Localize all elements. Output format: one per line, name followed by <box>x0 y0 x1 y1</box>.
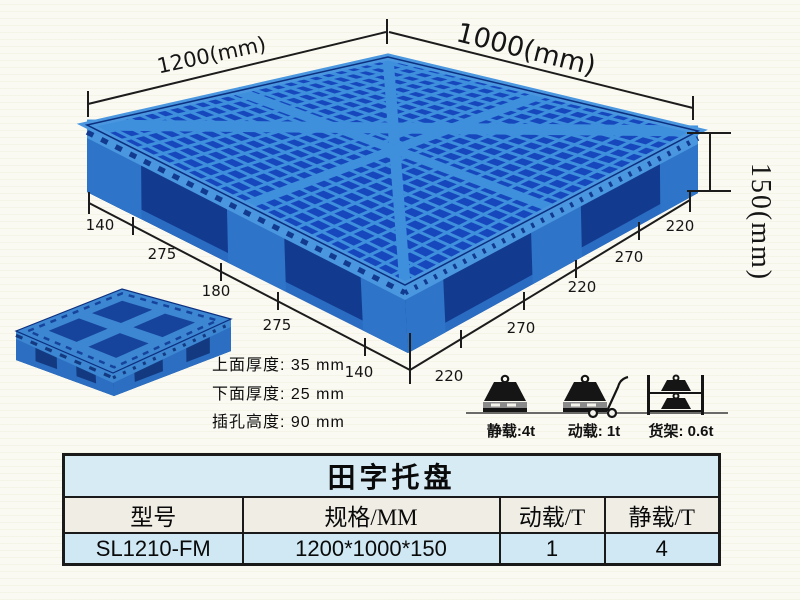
col-dynamic-load: 动载/T <box>500 497 605 533</box>
table-title: 田字托盘 <box>64 455 720 498</box>
right-seg-5: 220 <box>666 217 695 235</box>
left-seg-2: 275 <box>148 245 177 263</box>
right-seg-2: 270 <box>507 319 536 337</box>
product-spec-image: 1200(mm) 1000(mm) 150(mm) 140 275 180 27… <box>0 0 800 600</box>
table-title-row: 田字托盘 <box>64 455 720 498</box>
top-thickness-note: 上面厚度: 35 mm <box>212 352 345 381</box>
spec-table: 田字托盘 型号 规格/MM 动载/T 静载/T SL1210-FM 1200*1… <box>62 453 721 566</box>
cell-static-load: 4 <box>605 533 720 565</box>
rack-load-shelf-icon <box>647 375 704 415</box>
col-model: 型号 <box>64 497 243 533</box>
fork-hole-height-note: 插孔高度: 90 mm <box>212 409 345 438</box>
rack-load-label: 货架: 0.6t <box>648 422 713 440</box>
col-spec: 规格/MM <box>243 497 500 533</box>
thickness-notes: 上面厚度: 35 mm 下面厚度: 25 mm 插孔高度: 90 mm <box>212 352 345 438</box>
table-header-row: 型号 规格/MM 动载/T 静载/T <box>64 497 720 533</box>
static-load-label: 静载:4t <box>487 422 535 440</box>
left-seg-3: 180 <box>202 282 231 300</box>
table-data-row: SL1210-FM 1200*1000*150 1 4 <box>64 533 720 565</box>
left-seg-4: 275 <box>263 316 292 334</box>
cell-dynamic-load: 1 <box>500 533 605 565</box>
dynamic-load-trolley-icon <box>563 376 628 417</box>
load-capacity-icons: 静载:4t 动载: 1t 货架: 0.6t <box>466 375 728 440</box>
small-pallet-illustration <box>16 289 231 396</box>
right-seg-4: 270 <box>615 248 644 266</box>
bottom-thickness-note: 下面厚度: 25 mm <box>212 381 345 410</box>
cell-spec: 1200*1000*150 <box>243 533 500 565</box>
width-dimension-label: 1000(mm) <box>453 17 599 82</box>
height-dimension-label: 150(mm) <box>745 163 776 281</box>
right-seg-3: 220 <box>568 278 597 296</box>
cell-model: SL1210-FM <box>64 533 243 565</box>
col-static-load: 静载/T <box>605 497 720 533</box>
length-dimension-label: 1200(mm) <box>155 32 268 79</box>
right-seg-1: 220 <box>435 367 464 385</box>
left-seg-1: 140 <box>86 216 115 234</box>
dynamic-load-label: 动载: 1t <box>568 422 621 440</box>
static-load-weight-icon <box>483 376 527 412</box>
left-seg-5: 140 <box>345 363 374 381</box>
